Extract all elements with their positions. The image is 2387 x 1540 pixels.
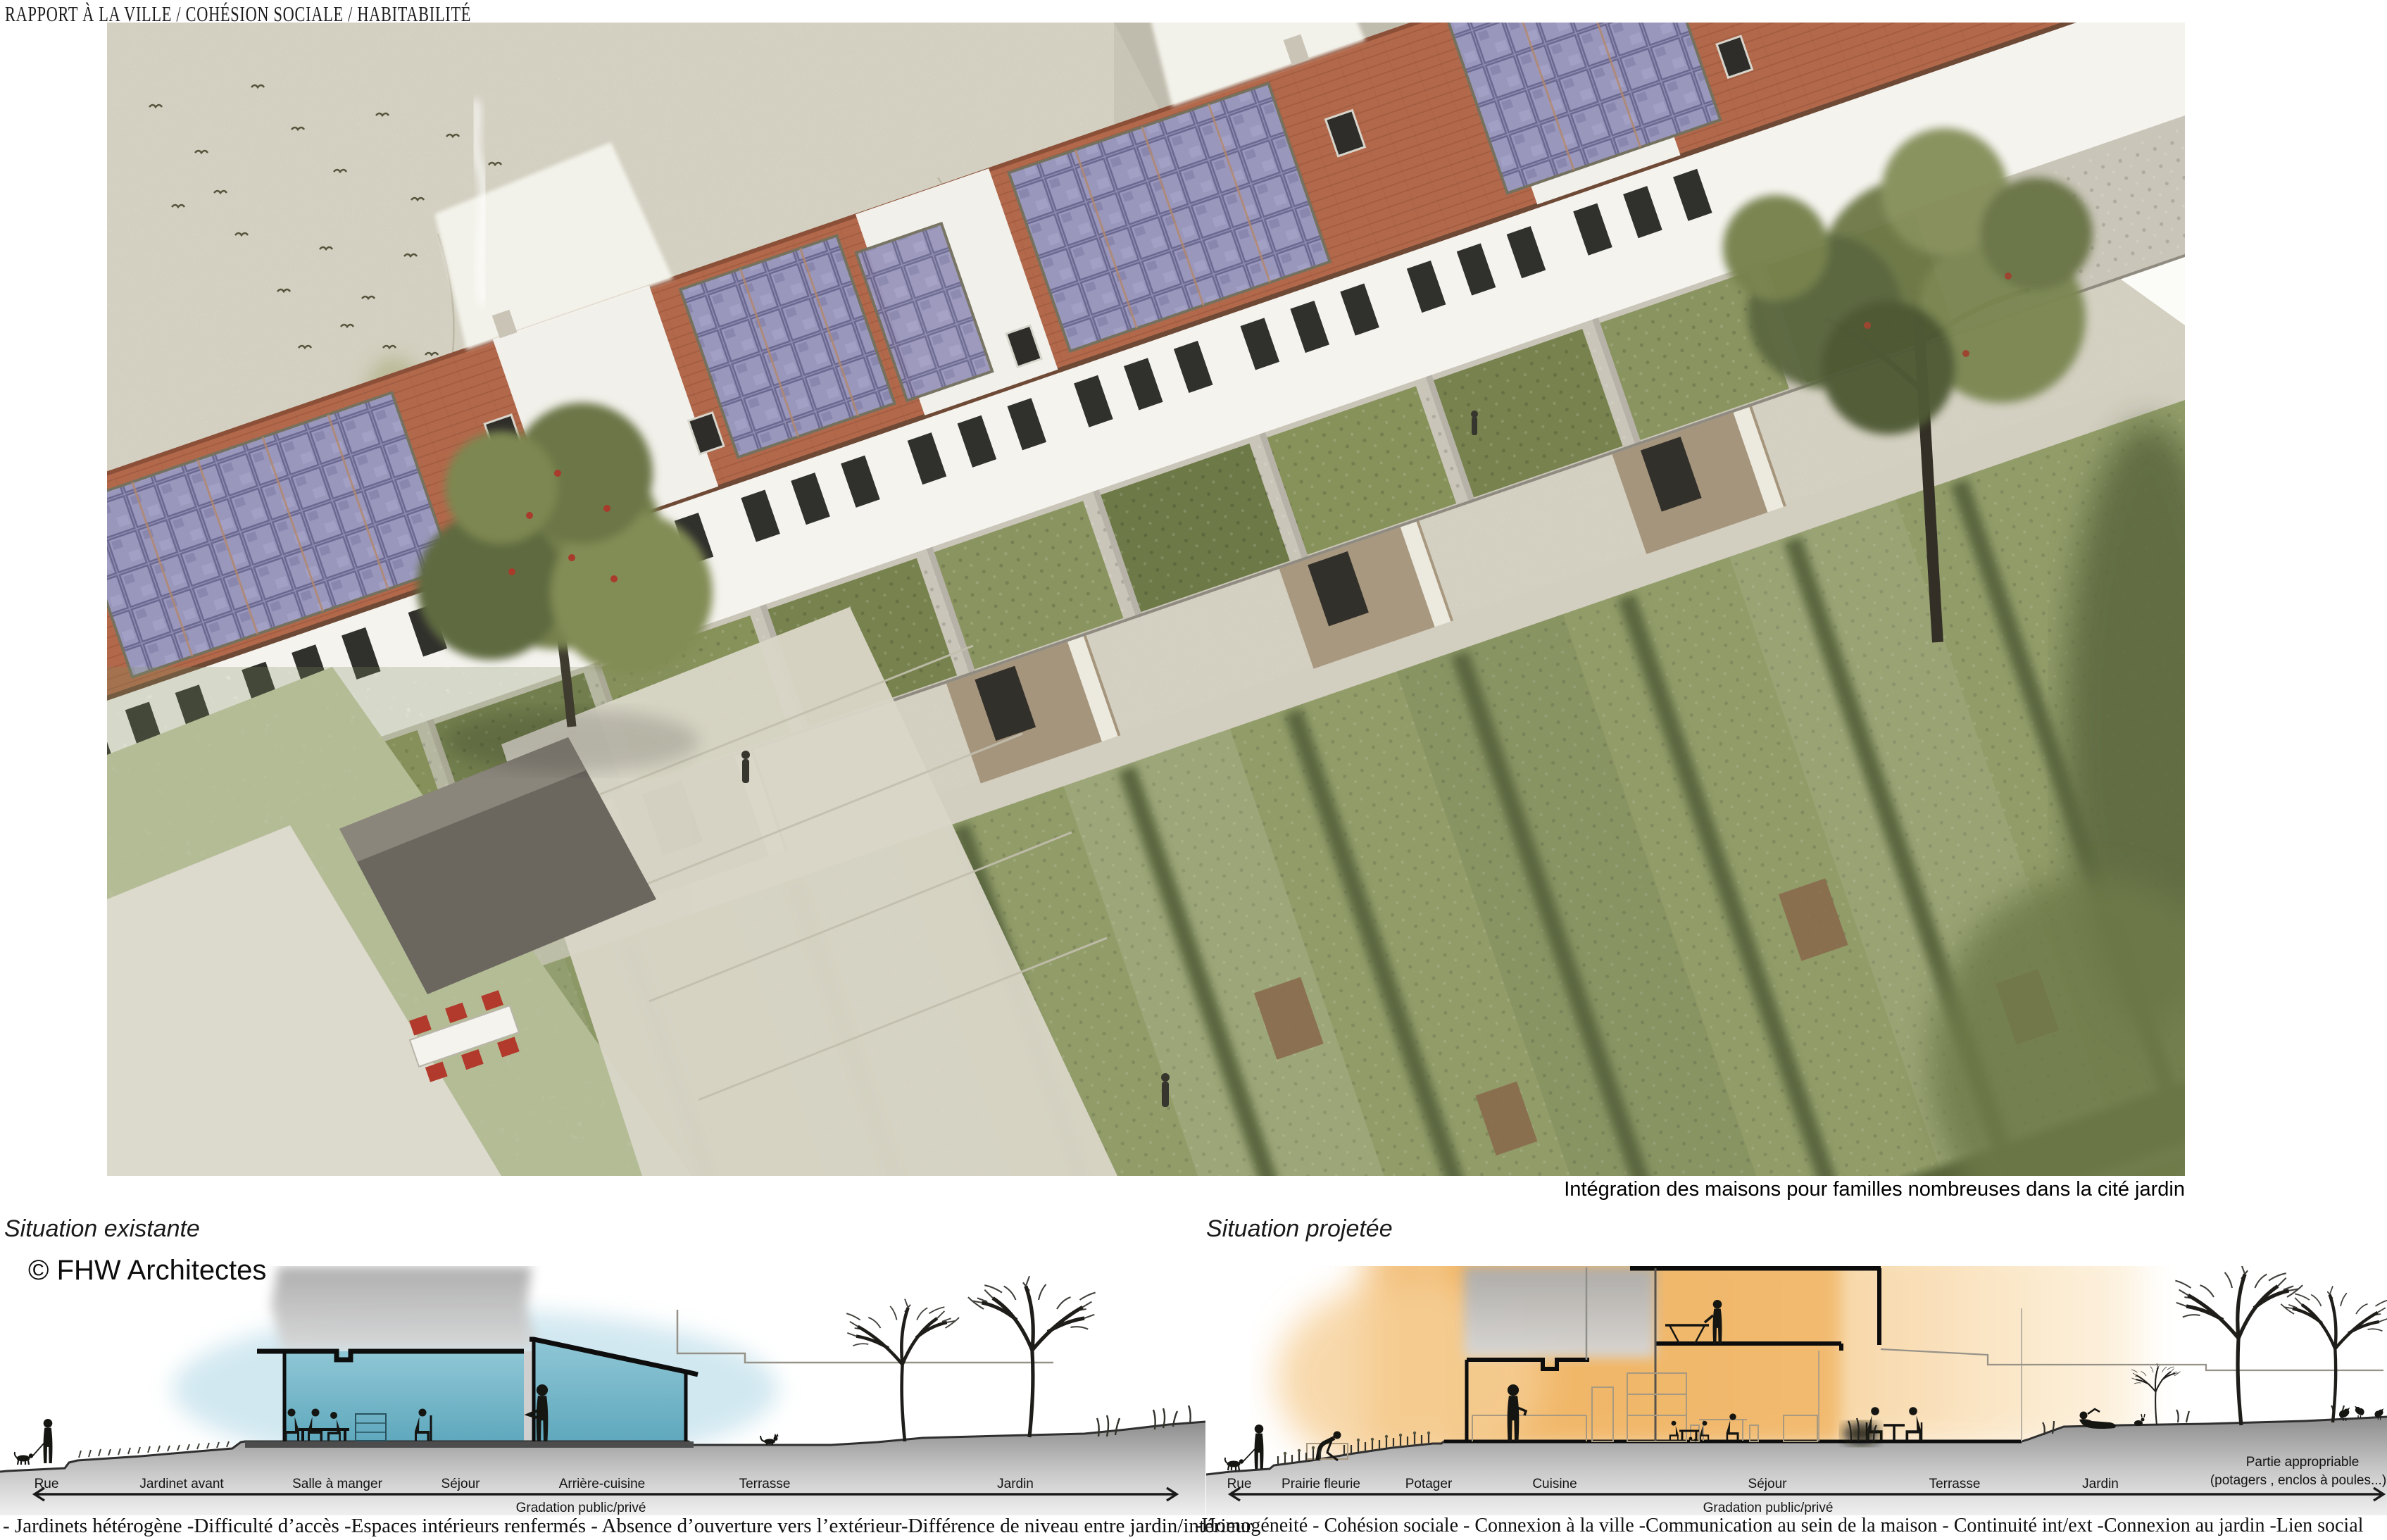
zone-label-rue: Rue	[35, 1477, 59, 1492]
zone-label-potager: Potager	[1405, 1477, 1453, 1492]
zone-label-terrasse-p: Terrasse	[1929, 1477, 1981, 1492]
zone-label-rue-p: Rue	[1227, 1477, 1252, 1492]
existing-notes: - Jardinets hétérogène -Difficulté d’acc…	[3, 1515, 1253, 1538]
projected-notes: -Homogéneité - Cohésion sociale - Connex…	[1195, 1515, 2363, 1537]
zone-label-partie-appropriable: Partie appropriable	[2246, 1455, 2360, 1470]
zone-label-salle-a-manger: Salle à manger	[292, 1477, 382, 1492]
zone-label-prairie-fleurie: Prairie fleurie	[1282, 1477, 1360, 1492]
zone-label-jardin-p: Jardin	[2082, 1477, 2119, 1492]
zone-label-terrasse: Terrasse	[739, 1477, 791, 1492]
aerial-render-illustration	[107, 23, 2185, 1176]
gradient-label-existing: Gradation public/privé	[516, 1501, 646, 1516]
zone-label-jardinet-avant: Jardinet avant	[139, 1477, 223, 1492]
zone-label-sejour: Séjour	[441, 1477, 480, 1492]
heading-situation-existante: Situation existante	[4, 1215, 200, 1243]
zone-label-jardin: Jardin	[997, 1477, 1034, 1492]
render-caption: Intégration des maisons pour familles no…	[1564, 1178, 2185, 1201]
copyright-watermark: © FHW Architectes	[28, 1255, 266, 1287]
zone-label-sejour-p: Séjour	[1748, 1477, 1787, 1492]
heading-situation-projetee: Situation projetée	[1206, 1215, 1393, 1243]
gradient-label-projected: Gradation public/privé	[1703, 1501, 1834, 1516]
zone-label-cuisine: Cuisine	[1532, 1477, 1577, 1492]
zone-label-partie-appropriable-detail: (potagers , enclos à poules...)	[2210, 1473, 2386, 1489]
zone-label-arriere-cuisine: Arrière-cuisine	[559, 1477, 645, 1492]
